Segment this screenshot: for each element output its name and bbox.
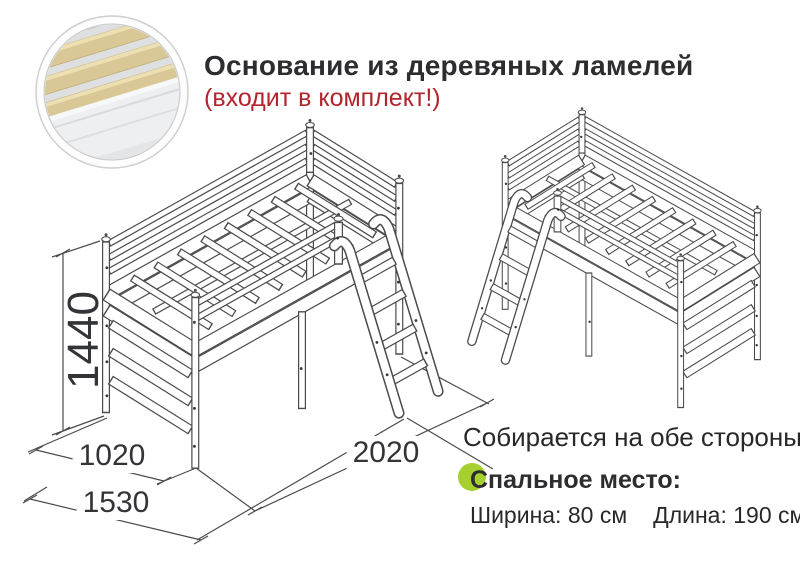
- both-sides-note: Собирается на обе стороны: [463, 422, 800, 453]
- loft-bed-left-view: [102, 119, 438, 469]
- sleeping-area-specs: Ширина: 80 смДлина: 190 см: [470, 502, 800, 529]
- loft-bed-right-view: [472, 107, 761, 408]
- dim-depth-label: 1020: [73, 439, 152, 473]
- included-note: (входит в комплект!): [204, 84, 441, 113]
- sleeping-area-title: Спальное место:: [470, 466, 681, 495]
- dim-height-label: 1440: [59, 291, 109, 389]
- dim-depth-total-label: 1530: [77, 486, 156, 520]
- dim-length-label: 2020: [347, 436, 426, 470]
- sleeping-length: Длина: 190 см: [653, 502, 800, 528]
- sleeping-width: Ширина: 80 см: [470, 502, 627, 528]
- product-infographic: Основание из деревяных ламелей (входит в…: [0, 0, 800, 568]
- page-title: Основание из деревяных ламелей: [204, 50, 693, 82]
